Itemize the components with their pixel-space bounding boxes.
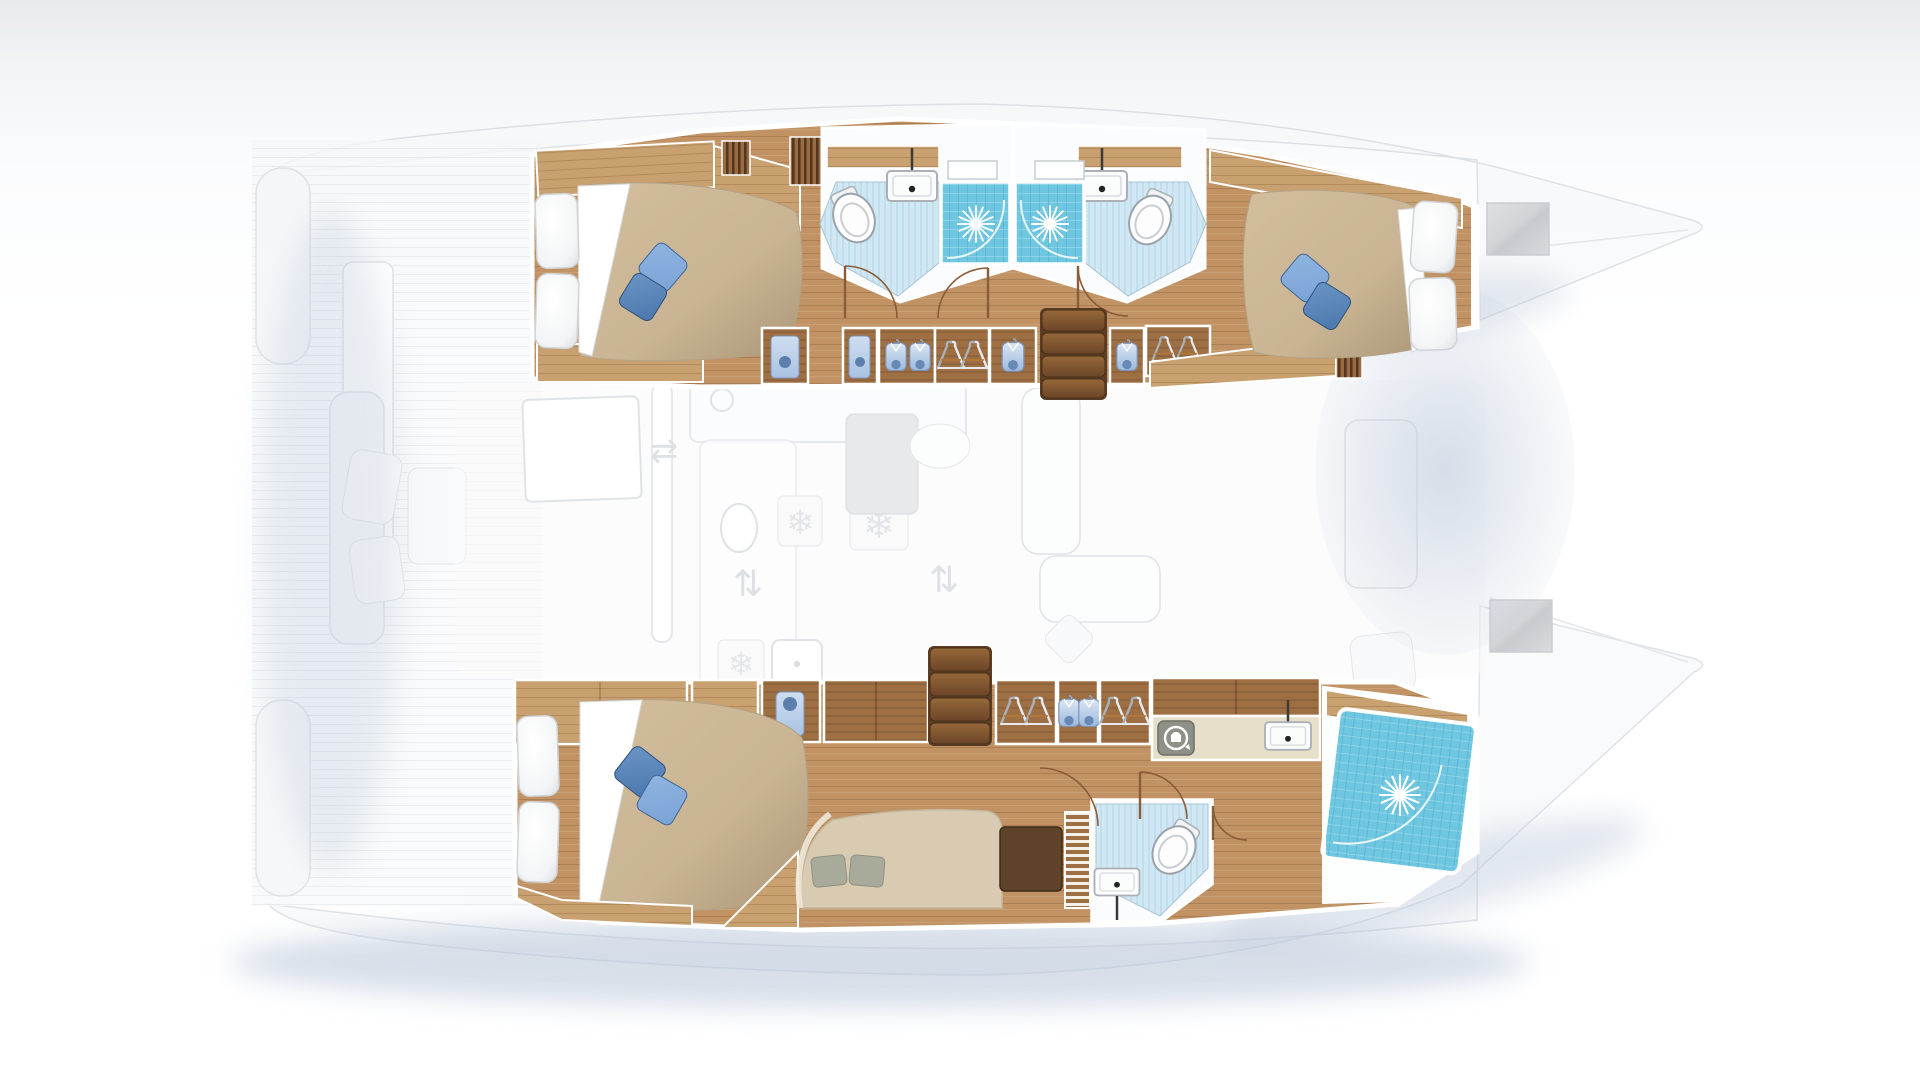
bow-shower-room: [1321, 688, 1477, 902]
shower-mixer: [779, 356, 791, 368]
vanity-desk: [1000, 827, 1062, 891]
port-forward-bathroom: [1013, 124, 1206, 302]
arrows-horizontal-icon: ⇄: [650, 431, 679, 471]
ghost-chart-table: [522, 396, 641, 502]
foredeck-hatch-top: [1487, 203, 1549, 255]
catamaran-floorplan-canvas: ❄ ❄ ❄ ⇄ ⇅ ⇅: [0, 0, 1920, 1080]
port-companionway-stairs: [1040, 308, 1107, 400]
louvered-vent-icon: [790, 137, 824, 185]
shower-cabin: [941, 182, 1010, 264]
arrows-vertical-icon: ⇅: [733, 564, 763, 605]
dressing-wardrobes: [996, 680, 1150, 744]
ghost-salon-table: [846, 414, 918, 514]
bed-pillow: [535, 193, 580, 268]
snowflake-icon: ❄: [728, 645, 755, 683]
stern-shadow: [260, 210, 400, 870]
hanging-locker: [1100, 680, 1150, 744]
bed-pillow: [1410, 201, 1459, 274]
ghost-mast-post: [652, 384, 672, 642]
arrows-vertical-icon: ⇅: [929, 560, 959, 601]
owner-sofa: [799, 810, 1002, 908]
shower-cabin: [1015, 182, 1084, 264]
starboard-companionway-stairs: [928, 646, 992, 746]
wet-locker-glass: [849, 336, 870, 378]
ghost-sofa-right: [1022, 388, 1080, 554]
snowflake-icon: ❄: [786, 503, 815, 543]
ghost-sofa-right: [1040, 556, 1160, 622]
shower-mixer: [783, 697, 797, 711]
bed-pillow: [517, 715, 560, 796]
bed-pillow: [1409, 277, 1457, 351]
bathroom-shelf: [827, 146, 939, 168]
ghost-galley-sink: [721, 504, 757, 552]
shower-window: [948, 161, 997, 179]
sofa-cushion: [849, 855, 885, 888]
slatted-step: [1065, 812, 1090, 908]
bed-pillow: [535, 273, 580, 348]
port-hull: [532, 119, 1477, 400]
port-aft-bathroom: [820, 124, 1013, 302]
utility-area: [1152, 678, 1320, 760]
floorplan-svg: ❄ ❄ ❄ ⇄ ⇅ ⇅: [0, 0, 1920, 1080]
louvered-vent-icon: [722, 141, 750, 175]
starboard-hull: [515, 646, 1477, 930]
shower-window: [1035, 161, 1084, 179]
ghost-sink-drain: [794, 661, 800, 667]
sofa-cushion: [811, 854, 848, 887]
bed-pillow: [517, 801, 560, 882]
bathroom-shelf: [1078, 146, 1182, 168]
shower-mixer: [855, 357, 865, 367]
ghost-seat: [910, 424, 970, 468]
